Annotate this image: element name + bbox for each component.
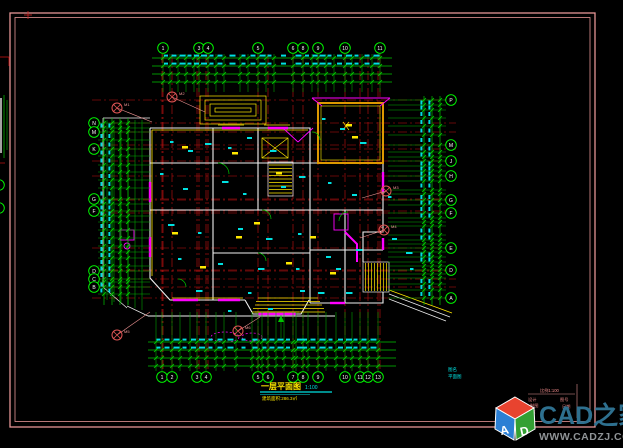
watermark-brand: CAD之家: [539, 401, 623, 430]
svg-text:11: 11: [357, 375, 362, 381]
axis-bubble-top-10: 10: [340, 43, 351, 54]
axis-bubble-left-M: M: [89, 127, 100, 138]
axis-grid-lines: [92, 54, 456, 373]
watermark-url: WWW.CADZJ.COM: [539, 431, 623, 443]
axis-bubble-bottom-12: 12: [363, 372, 374, 383]
svg-text:9: 9: [317, 46, 320, 52]
svg-text:13: 13: [375, 375, 381, 381]
svg-text:7: 7: [292, 375, 295, 381]
svg-text:H: H: [449, 174, 453, 180]
detail-callout-M5: M5: [112, 312, 150, 340]
svg-text:N: N: [92, 121, 96, 127]
axis-bubbles: 1345689101112345678910111213NMKGFDCBPMJH…: [89, 43, 457, 383]
svg-text:D: D: [449, 268, 453, 274]
axis-bubble-right-A: A: [446, 293, 457, 304]
watermark: A D CAD之家 WWW.CADZJ.COM: [495, 397, 623, 443]
detail-callout-M6: M6: [233, 317, 260, 336]
axis-bubble-top-6: 6: [288, 43, 299, 54]
svg-text:9: 9: [317, 375, 320, 381]
axis-bubble-left-G: G: [89, 194, 100, 205]
axis-bubble-bottom-8: 8: [298, 372, 309, 383]
axis-bubble-top-8: 8: [298, 43, 309, 54]
dimension-ticks: [102, 56, 442, 368]
detail-callout-M3: M3: [362, 185, 399, 198]
axis-bubble-bottom-5: 5: [253, 372, 264, 383]
axis-bubble-top-5: 5: [253, 43, 264, 54]
axis-bubble-bottom-4: 4: [201, 372, 212, 383]
svg-text:M6: M6: [245, 325, 251, 330]
svg-text:M: M: [92, 130, 96, 136]
svg-text:M: M: [449, 143, 453, 149]
title-main: 一层平面图: [261, 382, 301, 391]
axis-bubble-top-1: 1: [158, 43, 169, 54]
svg-text:8: 8: [302, 46, 305, 52]
svg-text:M4: M4: [391, 224, 397, 229]
title-scale: 1:100: [305, 385, 318, 391]
title-block-row: 设计: [528, 396, 536, 403]
sheet-note: 图名 平面图: [448, 366, 462, 380]
svg-text:G: G: [449, 198, 453, 204]
svg-text:3: 3: [198, 46, 201, 52]
axis-bubble-right-M: M: [446, 140, 457, 151]
axis-bubble-right-F: F: [446, 208, 457, 219]
axis-bubble-right-P: P: [446, 95, 457, 106]
axis-bubble-right-G: G: [446, 195, 457, 206]
svg-text:3: 3: [196, 375, 199, 381]
svg-text:10: 10: [342, 46, 348, 52]
svg-text:5: 5: [257, 375, 260, 381]
axis-bubble-right-J: J: [446, 156, 457, 167]
svg-text:F: F: [92, 209, 95, 215]
svg-text:4: 4: [205, 375, 208, 381]
axis-bubble-left-B: B: [89, 282, 100, 293]
left-edge-sliver: [0, 57, 9, 213]
axis-bubble-left-K: K: [89, 144, 100, 155]
svg-text:11: 11: [377, 46, 382, 52]
axis-bubble-bottom-1: 1: [157, 372, 168, 383]
svg-text:5: 5: [257, 46, 260, 52]
svg-text:1: 1: [162, 46, 165, 52]
svg-text:12: 12: [365, 375, 371, 381]
axis-bubble-top-11: 11: [375, 43, 386, 54]
title-block-heading: 比例1:100: [540, 387, 560, 394]
axis-bubble-bottom-7: 7: [288, 372, 299, 383]
paper-frame: [10, 11, 595, 427]
cad-screenshot: 1345689101112345678910111213NMKGFDCBPMJH…: [0, 0, 623, 448]
svg-text:8: 8: [302, 375, 305, 381]
cadzj-cube-logo-icon: A D: [495, 397, 535, 440]
sheet-note-line2: 平面图: [448, 374, 462, 380]
axis-bubble-bottom-13: 13: [373, 372, 384, 383]
svg-text:2: 2: [171, 375, 174, 381]
axis-bubble-bottom-10: 10: [340, 372, 351, 383]
svg-text:M1: M1: [124, 102, 130, 107]
svg-text:G: G: [92, 197, 96, 203]
svg-text:M3: M3: [393, 185, 399, 190]
axis-bubble-bottom-2: 2: [167, 372, 178, 383]
axis-bubble-right-D: D: [446, 265, 457, 276]
svg-text:6: 6: [292, 46, 295, 52]
axis-bubble-bottom-6: 6: [263, 372, 274, 383]
title-subtitle: 建筑面积:286.3㎡: [262, 395, 298, 402]
detail-callout-M4: M4: [360, 224, 397, 238]
svg-text:6: 6: [267, 375, 270, 381]
cad-drawing: 1345689101112345678910111213NMKGFDCBPMJH…: [0, 0, 623, 448]
axis-bubble-right-E: E: [446, 243, 457, 254]
svg-text:4: 4: [207, 46, 210, 52]
axis-bubble-top-9: 9: [313, 43, 324, 54]
svg-text:1: 1: [161, 375, 164, 381]
svg-text:M5: M5: [124, 329, 130, 334]
room-annotation-marks: [160, 118, 414, 312]
svg-text:F: F: [449, 211, 452, 217]
axis-bubble-bottom-9: 9: [313, 372, 324, 383]
sheet-note-line1: 图名: [448, 366, 457, 373]
svg-text:10: 10: [342, 375, 348, 381]
drawing-title: 一层平面图 1:100 建筑面积:286.3㎡: [260, 382, 332, 402]
axis-bubble-left-F: F: [89, 206, 100, 217]
detail-callout-M1: M1: [112, 102, 152, 122]
axis-bubble-top-4: 4: [203, 43, 214, 54]
dimension-chains: [104, 58, 440, 366]
floor-plan-walls: [148, 98, 390, 316]
axis-bubble-right-H: H: [446, 171, 457, 182]
svg-text:M2: M2: [179, 91, 185, 96]
